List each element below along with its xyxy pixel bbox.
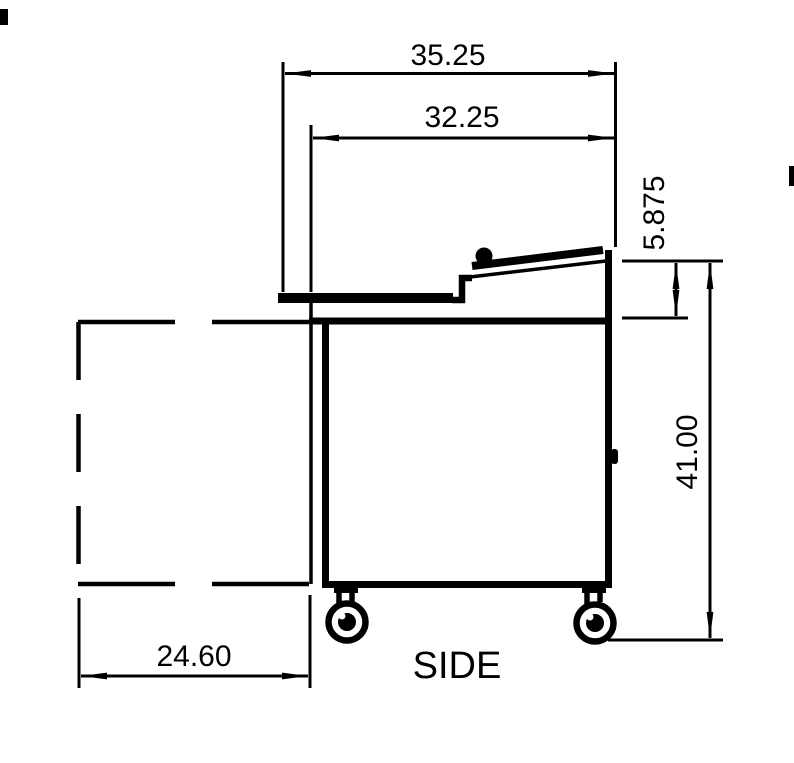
side-view-technical-drawing: 35.25 32.25 5.875 41.00 24.60 SIDE (0, 0, 794, 763)
technical-drawing-page: 35.25 32.25 5.875 41.00 24.60 SIDE (0, 0, 794, 763)
dimension-lid-riser-height: 5.875 (622, 175, 723, 318)
dimension-top-depth: 32.25 (311, 101, 614, 292)
caster-front (329, 586, 366, 641)
view-label: SIDE (413, 645, 502, 687)
lid-knob (476, 248, 493, 265)
scan-artifact-right-edge (789, 166, 794, 186)
dimension-label: 24.60 (156, 640, 231, 673)
equipment-outline (278, 248, 618, 589)
scan-artifact-top-left (0, 9, 8, 25)
door-swing-dashed-outline (78, 322, 310, 585)
caster-rear (577, 586, 614, 642)
cutting-board (278, 293, 453, 303)
dimension-door-clearance: 24.60 (79, 595, 310, 688)
dimension-label: 35.25 (410, 39, 485, 72)
door-latch-nub (611, 449, 618, 464)
dimension-label: 32.25 (424, 101, 499, 134)
lid-step (452, 278, 472, 300)
dimension-label: 41.00 (671, 414, 704, 489)
dimension-overall-height: 41.00 (608, 263, 723, 640)
dimension-label: 5.875 (638, 175, 671, 250)
